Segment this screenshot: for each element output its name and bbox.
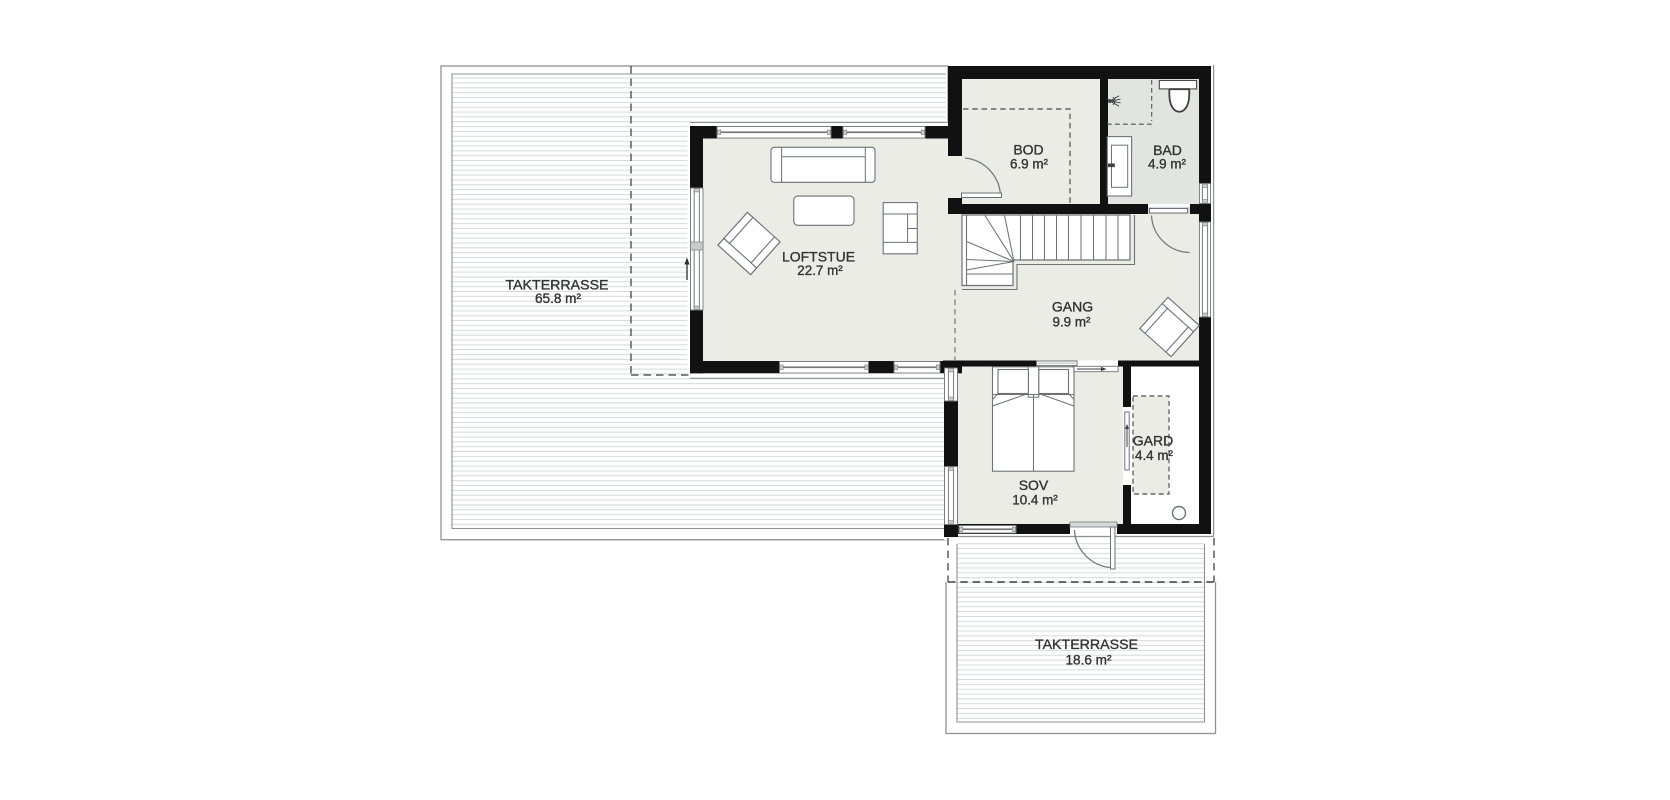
svg-text:TAKTERRASSE: TAKTERRASSE bbox=[1035, 637, 1138, 653]
svg-text:GARD: GARD bbox=[1133, 432, 1173, 448]
svg-text:9.9 m²: 9.9 m² bbox=[1053, 314, 1091, 329]
svg-text:10.4 m²: 10.4 m² bbox=[1012, 493, 1058, 508]
svg-text:BOD: BOD bbox=[1013, 142, 1043, 158]
svg-text:6.9 m²: 6.9 m² bbox=[1010, 157, 1048, 172]
svg-text:18.6 m²: 18.6 m² bbox=[1065, 653, 1112, 668]
svg-text:LOFTSTUE: LOFTSTUE bbox=[782, 248, 855, 264]
svg-text:BAD: BAD bbox=[1153, 142, 1182, 158]
svg-text:SOV: SOV bbox=[1019, 477, 1049, 493]
svg-text:GANG: GANG bbox=[1052, 299, 1093, 315]
svg-text:4.4 m²: 4.4 m² bbox=[1135, 448, 1173, 463]
svg-text:22.7 m²: 22.7 m² bbox=[797, 263, 843, 278]
svg-text:65.8 m²: 65.8 m² bbox=[535, 291, 582, 306]
svg-text:4.9 m²: 4.9 m² bbox=[1148, 157, 1186, 172]
